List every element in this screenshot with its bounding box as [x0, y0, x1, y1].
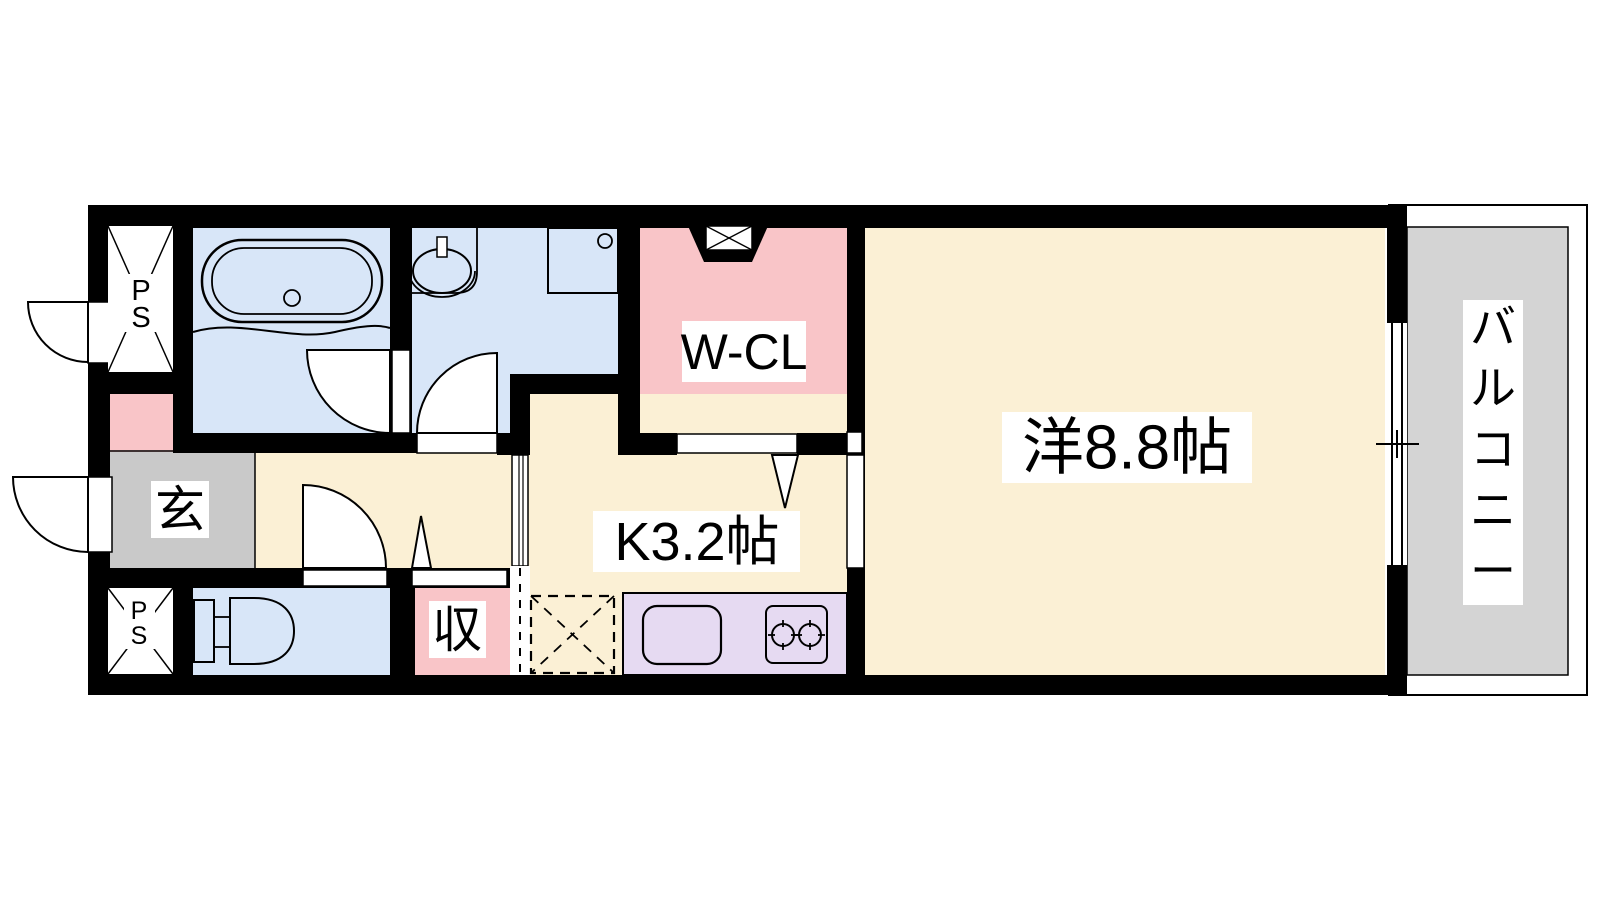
svg-text:コ: コ — [1470, 423, 1516, 475]
wall-ps-bottom — [108, 372, 175, 394]
bathroom-door-leaf — [392, 350, 410, 433]
ps-bottom-label-p: P — [131, 597, 148, 625]
entrance-door-opening — [88, 477, 112, 552]
wall-wcl-bottom-right — [797, 433, 847, 455]
label-western-room: 洋8.8帖 — [1002, 412, 1252, 483]
storage-door-opening — [412, 570, 507, 586]
label-storage: 収 — [429, 601, 486, 658]
wall-toilet-storage — [390, 586, 415, 675]
vent-box-icon — [706, 226, 752, 250]
wall-wcl-left — [618, 226, 640, 455]
svg-text:バ: バ — [1470, 301, 1516, 353]
pipe-space-bottom: P S — [108, 588, 173, 674]
wall-ps-right — [173, 226, 193, 453]
wall-bathroom-bottom — [193, 433, 417, 453]
label-balcony: バ ル コ ニ ー — [1463, 300, 1523, 605]
wcl-door-opening — [677, 434, 797, 453]
label-kitchen: K3.2帖 — [593, 511, 800, 572]
svg-text:ニ: ニ — [1470, 484, 1516, 536]
pipe-space-top: P S — [108, 226, 173, 372]
toilet-door-opening — [303, 570, 387, 586]
meter-door-swing-icon — [28, 302, 88, 362]
svg-text:ル: ル — [1470, 362, 1516, 414]
entrance-door-swing-icon — [13, 477, 88, 552]
svg-text:玄: 玄 — [155, 482, 205, 538]
svg-text:ー: ー — [1470, 545, 1516, 597]
washroom-door-opening — [417, 433, 497, 453]
wall-bottom — [88, 675, 1407, 695]
partition-panel — [512, 455, 528, 566]
svg-text:K3.2帖: K3.2帖 — [614, 512, 779, 572]
svg-text:W-CL: W-CL — [681, 324, 808, 380]
floor-plan: P S P S 洋8.8帖 K3.2帖 W-CL 玄 — [0, 0, 1600, 900]
wall-wcl-bottom-left — [640, 433, 677, 455]
sliding-door-pocket — [847, 432, 862, 453]
label-walk-in-closet: W-CL — [681, 321, 808, 382]
wall-hall-corner — [497, 433, 528, 455]
shoe-cabinet — [110, 394, 175, 452]
label-entrance: 玄 — [151, 481, 209, 538]
wall-top — [88, 205, 1407, 228]
ps-top-label-s: S — [131, 302, 150, 334]
sliding-door-panel — [847, 455, 864, 568]
svg-text:洋8.8帖: 洋8.8帖 — [1022, 414, 1232, 483]
svg-text:収: 収 — [432, 602, 482, 658]
ps-bottom-label-s: S — [131, 622, 148, 650]
toilet-floor — [193, 587, 390, 675]
